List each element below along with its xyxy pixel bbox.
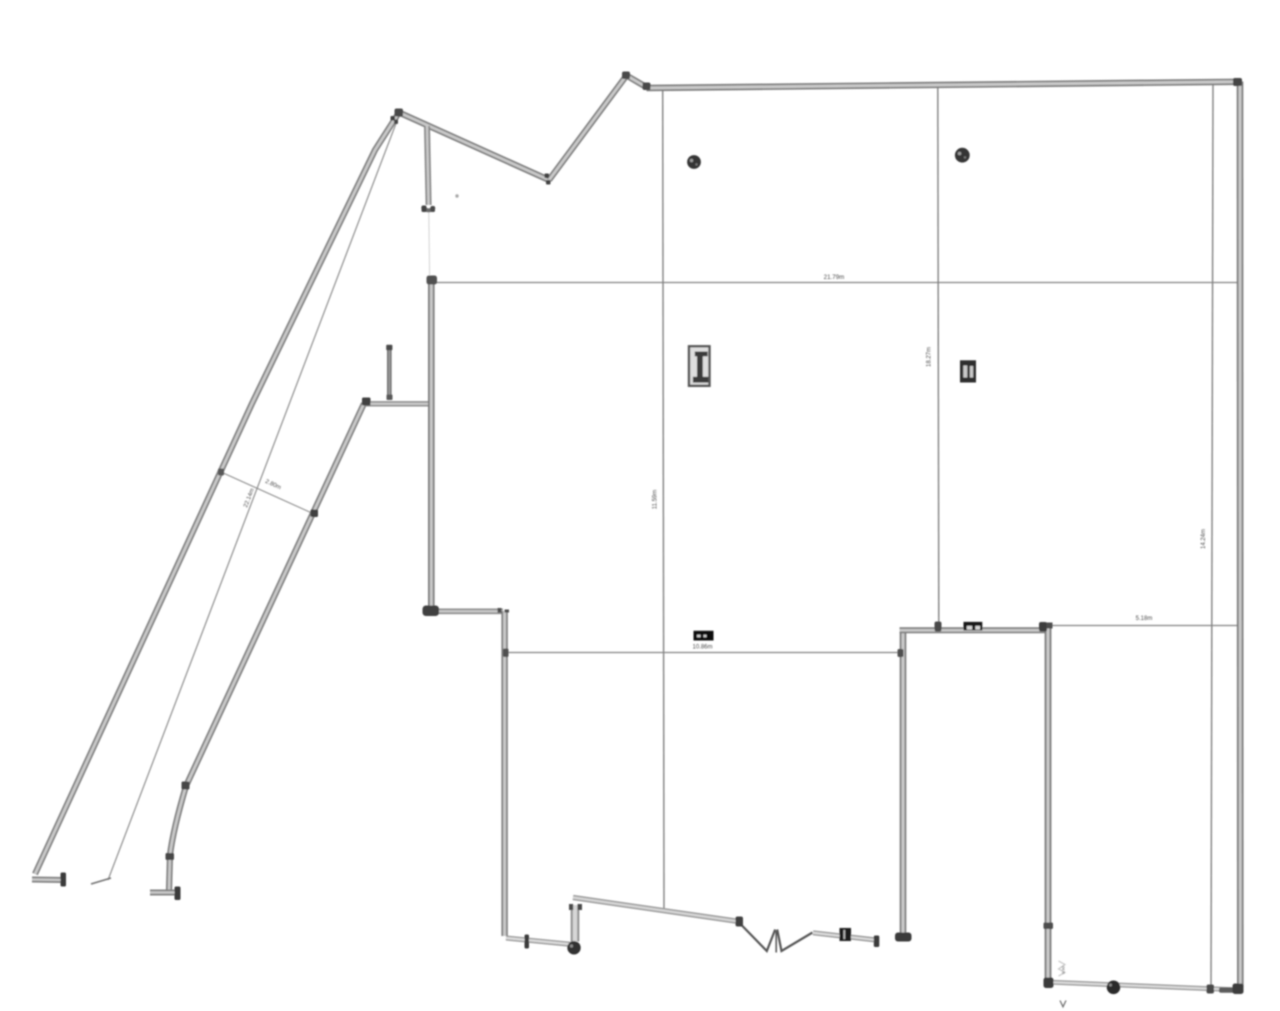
- svg-text:5.18m: 5.18m: [1136, 616, 1153, 622]
- svg-text:14.24m: 14.24m: [1201, 529, 1207, 549]
- svg-text:0.90: 0.90: [1061, 965, 1066, 974]
- svg-text:21.79m: 21.79m: [824, 274, 845, 281]
- svg-text:11.59m: 11.59m: [653, 490, 659, 510]
- svg-text:10.86m: 10.86m: [692, 645, 712, 651]
- svg-text:18.27m: 18.27m: [927, 347, 933, 367]
